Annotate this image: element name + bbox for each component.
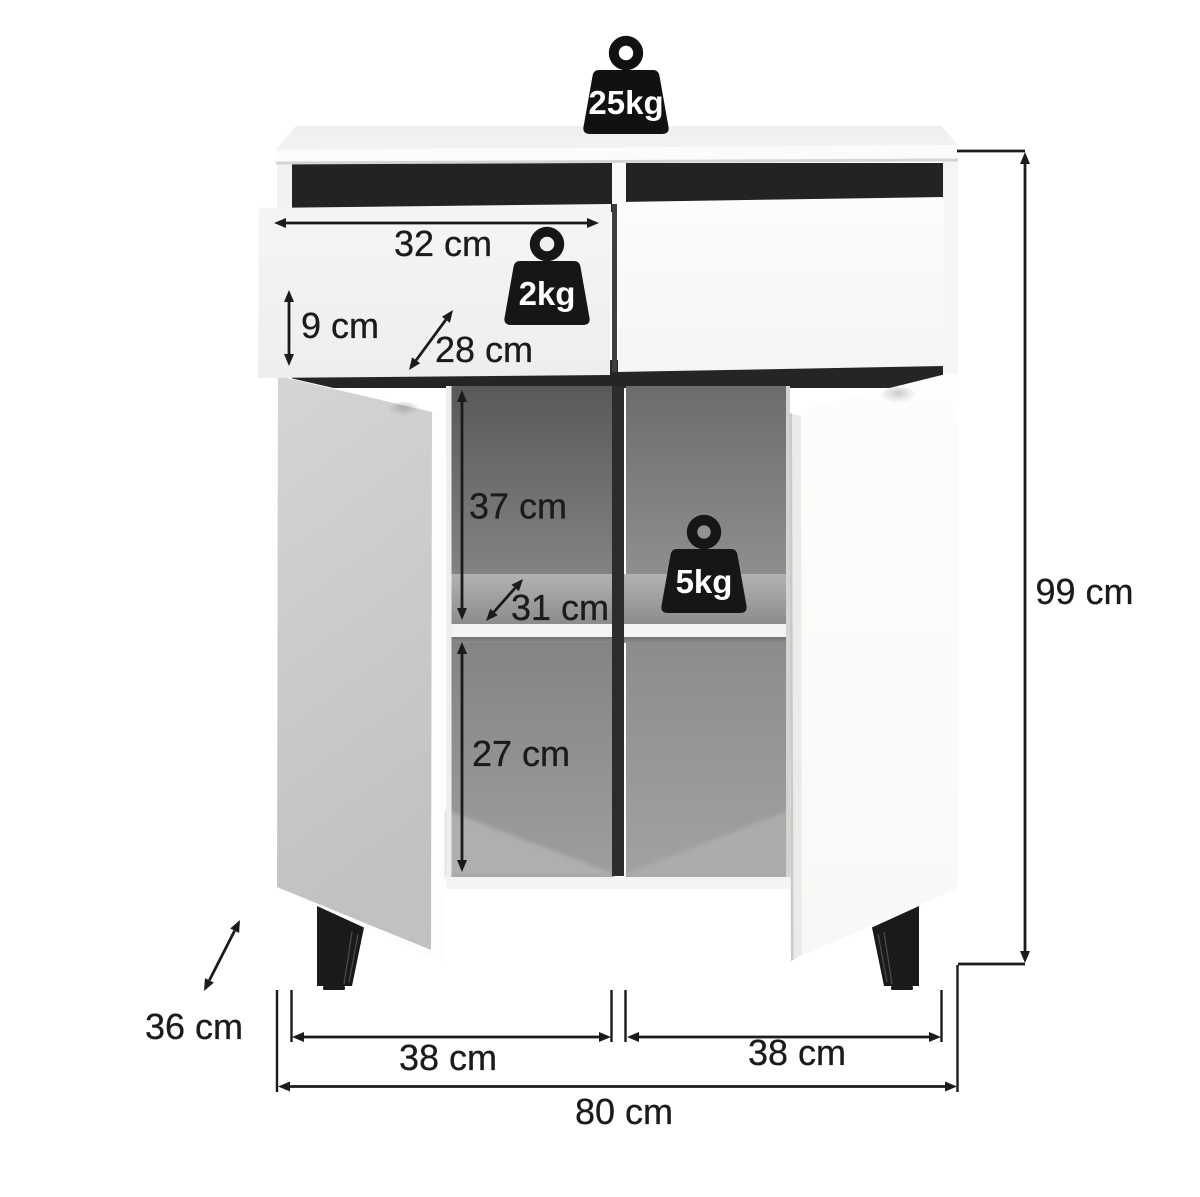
svg-text:32 cm: 32 cm bbox=[394, 223, 492, 264]
svg-text:5kg: 5kg bbox=[676, 563, 733, 600]
svg-text:9 cm: 9 cm bbox=[301, 305, 379, 346]
svg-text:31 cm: 31 cm bbox=[511, 587, 609, 628]
svg-text:80 cm: 80 cm bbox=[575, 1091, 673, 1132]
svg-text:38 cm: 38 cm bbox=[399, 1037, 497, 1078]
svg-text:28 cm: 28 cm bbox=[435, 329, 533, 370]
svg-text:38 cm: 38 cm bbox=[748, 1032, 846, 1073]
svg-text:25kg: 25kg bbox=[588, 84, 663, 121]
svg-text:27 cm: 27 cm bbox=[472, 733, 570, 774]
svg-text:2kg: 2kg bbox=[519, 275, 576, 312]
svg-text:99 cm: 99 cm bbox=[1035, 571, 1133, 612]
svg-text:37 cm: 37 cm bbox=[469, 486, 567, 527]
svg-text:36 cm: 36 cm bbox=[145, 1006, 243, 1047]
